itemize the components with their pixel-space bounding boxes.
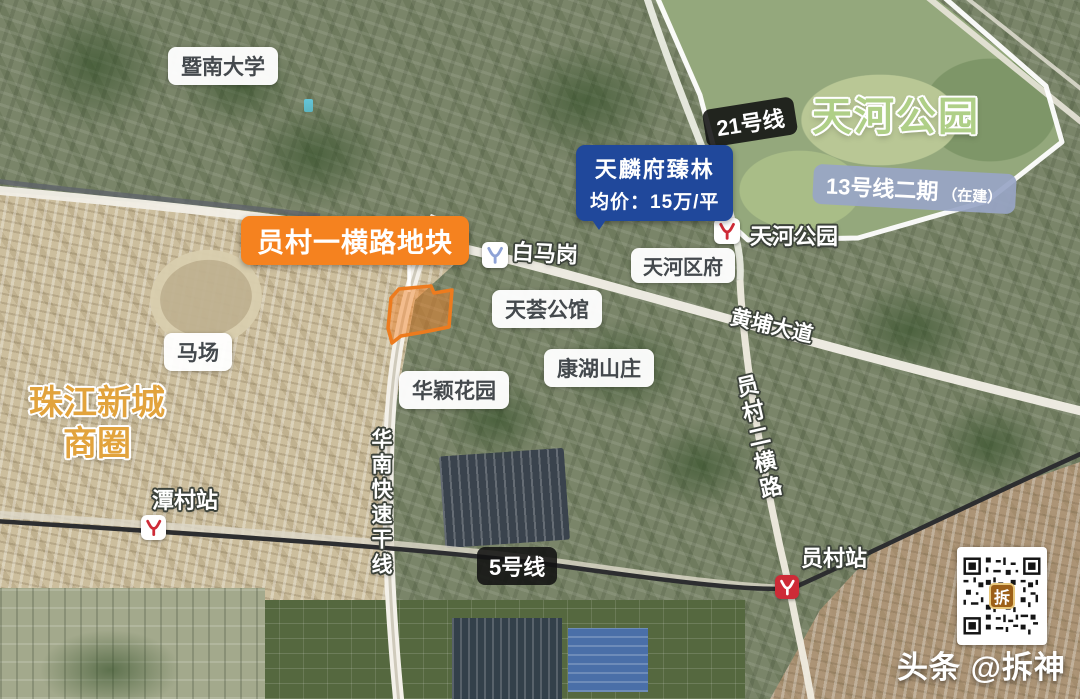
project-price: 均价：15万/平 — [590, 187, 719, 214]
metro-icon-tancun — [141, 515, 166, 540]
qr-center-logo: 拆 — [989, 583, 1015, 609]
label-tianhe-park-station: 天河公园 — [750, 219, 838, 251]
zhujiang-line2: 商圈 — [18, 424, 176, 465]
label-racecourse: 马场 — [164, 333, 232, 371]
label-metro-line5: 5号线 — [477, 547, 557, 585]
satellite-map: 暨南大学 天河公园 21号线 13号线二期（在建） 天麟府臻林 均价：15万/平… — [0, 0, 1080, 699]
label-tancun-station: 潭村站 — [152, 483, 218, 515]
qr-code: 拆 — [957, 547, 1047, 645]
plot-polygon — [388, 286, 452, 343]
label-tianhe-park-title: 天河公园 — [812, 84, 980, 142]
label-district-government: 天河区府 — [631, 248, 735, 283]
zhujiang-line1: 珠江新城 — [18, 383, 176, 424]
price-card-pointer — [592, 220, 606, 230]
line13-status: （在建） — [942, 186, 1003, 206]
label-jinan-university: 暨南大学 — [168, 47, 278, 85]
label-kanghu-villa: 康湖山庄 — [544, 349, 654, 387]
label-zhujiang-cbd: 珠江新城 商圈 — [18, 383, 176, 465]
label-tianhui-mansion: 天荟公馆 — [492, 290, 602, 328]
metro-icon-tianhe-park — [714, 218, 740, 244]
label-project-price-card: 天麟府臻林 均价：15万/平 — [576, 145, 733, 221]
project-name: 天麟府臻林 — [590, 152, 719, 184]
label-yuancun-station: 员村站 — [801, 541, 867, 573]
label-plot-title: 员村一横路地块 — [241, 216, 469, 265]
watermark-toutiao-chaishen: 头条 @拆神 — [897, 642, 1066, 687]
metro-icon-yuancun — [775, 575, 799, 599]
label-baimagang: 白马岗 — [511, 234, 579, 269]
label-huaying-garden: 华颖花园 — [399, 371, 509, 409]
label-huanan-expressway: 华南快速干线 — [365, 428, 395, 578]
line13-name: 13号线二期 — [825, 173, 939, 204]
corner-road-ne-2 — [963, 0, 1080, 92]
metro-icon-baimagang — [482, 242, 508, 268]
